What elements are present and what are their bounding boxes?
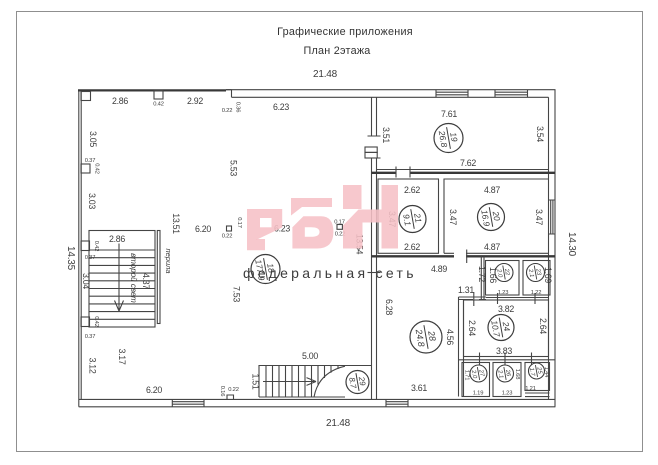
svg-text:3.47: 3.47 — [534, 209, 544, 225]
svg-text:18: 18 — [265, 263, 277, 274]
svg-text:1.72: 1.72 — [477, 266, 487, 282]
svg-text:2.92: 2.92 — [187, 96, 203, 106]
svg-text:1.19: 1.19 — [473, 391, 483, 397]
svg-text:4.89: 4.89 — [431, 264, 447, 274]
svg-text:0.17: 0.17 — [236, 217, 242, 227]
svg-text:19: 19 — [448, 132, 460, 143]
svg-text:20: 20 — [490, 210, 502, 222]
svg-text:1.68: 1.68 — [514, 369, 520, 379]
svg-text:0.22: 0.22 — [222, 234, 232, 240]
svg-text:2.62: 2.62 — [404, 242, 420, 252]
svg-text:Графические приложения: Графические приложения — [277, 26, 413, 38]
svg-text:21.48: 21.48 — [326, 418, 351, 429]
svg-text:3.61: 3.61 — [411, 383, 427, 393]
svg-text:4.87: 4.87 — [484, 242, 500, 252]
svg-text:0.22: 0.22 — [222, 108, 232, 114]
svg-text:7.62: 7.62 — [460, 158, 476, 168]
svg-text:24: 24 — [500, 320, 512, 332]
svg-text:6.20: 6.20 — [195, 224, 211, 234]
svg-text:2.64: 2.64 — [467, 320, 477, 336]
svg-text:3.17: 3.17 — [117, 349, 127, 365]
svg-text:0.16: 0.16 — [219, 386, 225, 396]
svg-text:3.82: 3.82 — [498, 304, 514, 314]
svg-text:0.36: 0.36 — [235, 102, 241, 112]
svg-text:1.22: 1.22 — [531, 290, 541, 296]
svg-text:1.23: 1.23 — [502, 391, 512, 397]
svg-text:3.12: 3.12 — [88, 358, 98, 374]
svg-text:0.22: 0.22 — [228, 387, 238, 393]
svg-text:перила: перила — [164, 248, 173, 273]
svg-text:28: 28 — [426, 329, 438, 342]
svg-text:2.86: 2.86 — [109, 234, 125, 244]
svg-text:1.23: 1.23 — [498, 290, 508, 296]
svg-text:0.42: 0.42 — [93, 241, 99, 251]
svg-text:0.42: 0.42 — [153, 102, 163, 108]
svg-text:7.61: 7.61 — [441, 109, 457, 119]
svg-text:0.42: 0.42 — [94, 163, 100, 173]
svg-text:21: 21 — [412, 212, 424, 224]
svg-text:14.35: 14.35 — [65, 246, 76, 271]
svg-text:5.00: 5.00 — [302, 351, 318, 361]
svg-text:6.20: 6.20 — [146, 385, 162, 395]
svg-text:21.48: 21.48 — [313, 69, 338, 80]
svg-text:0.17: 0.17 — [334, 220, 344, 226]
svg-text:4.87: 4.87 — [484, 185, 500, 195]
svg-text:6.28: 6.28 — [384, 299, 394, 315]
svg-text:7.53: 7.53 — [232, 286, 242, 302]
svg-text:1.21: 1.21 — [525, 386, 535, 392]
svg-text:9.1: 9.1 — [401, 213, 413, 227]
svg-text:4.56: 4.56 — [445, 329, 455, 345]
svg-text:3.47: 3.47 — [448, 209, 458, 225]
svg-text:3.03: 3.03 — [87, 193, 97, 209]
svg-text:1.71: 1.71 — [464, 370, 470, 380]
svg-text:1.31: 1.31 — [458, 285, 474, 295]
svg-text:13.51: 13.51 — [171, 213, 181, 234]
svg-text:0.37: 0.37 — [85, 334, 95, 340]
svg-text:0.37: 0.37 — [85, 255, 95, 261]
svg-text:2.62: 2.62 — [404, 185, 420, 195]
svg-text:3.54: 3.54 — [535, 126, 545, 142]
svg-text:0.42: 0.42 — [93, 316, 99, 326]
svg-text:2.64: 2.64 — [538, 318, 548, 334]
svg-text:2.86: 2.86 — [112, 96, 128, 106]
svg-text:второй свет: второй свет — [129, 253, 138, 303]
svg-text:3.83: 3.83 — [496, 346, 512, 356]
svg-text:14.30: 14.30 — [566, 232, 577, 257]
svg-text:6.23: 6.23 — [273, 102, 289, 112]
svg-text:План 2этажа: План 2этажа — [303, 45, 370, 57]
svg-text:5.53: 5.53 — [229, 160, 239, 176]
svg-text:3.51: 3.51 — [381, 127, 391, 143]
svg-text:1.51: 1.51 — [251, 374, 261, 390]
svg-text:3.04: 3.04 — [81, 273, 91, 289]
svg-text:4.37: 4.37 — [141, 273, 151, 289]
svg-text:3.05: 3.05 — [88, 131, 98, 147]
